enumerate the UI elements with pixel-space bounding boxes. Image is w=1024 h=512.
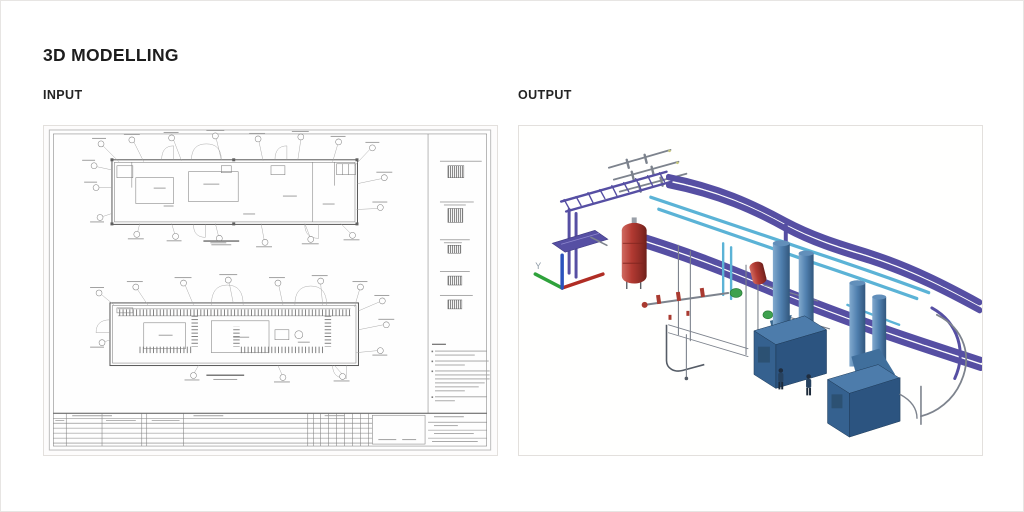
boiler-right — [828, 280, 901, 437]
exchanger-plate — [552, 230, 608, 252]
pump-assembly — [642, 288, 773, 320]
legend-swatch — [448, 276, 462, 285]
red-vessel — [622, 217, 647, 289]
input-drawing-panel — [43, 125, 498, 456]
sheet-frame — [49, 130, 490, 450]
page-title: 3D MODELLING — [43, 45, 179, 66]
pipe-loop-right — [900, 308, 966, 424]
legend-swatch — [448, 166, 464, 178]
cable-tray — [561, 172, 671, 277]
engineering-drawing-svg — [44, 126, 497, 455]
axis-y-label: Y — [535, 261, 541, 271]
input-label: INPUT — [43, 88, 83, 102]
output-model-panel: Y — [518, 125, 983, 456]
cad-model-svg: Y — [519, 126, 982, 455]
legend-swatch — [448, 245, 461, 253]
legend-swatch — [448, 300, 462, 309]
page: 3D MODELLING INPUT OUTPUT — [0, 0, 1024, 512]
legend-swatch — [448, 208, 463, 222]
stack — [773, 243, 790, 326]
output-label: OUTPUT — [518, 88, 572, 102]
worker — [806, 374, 811, 395]
